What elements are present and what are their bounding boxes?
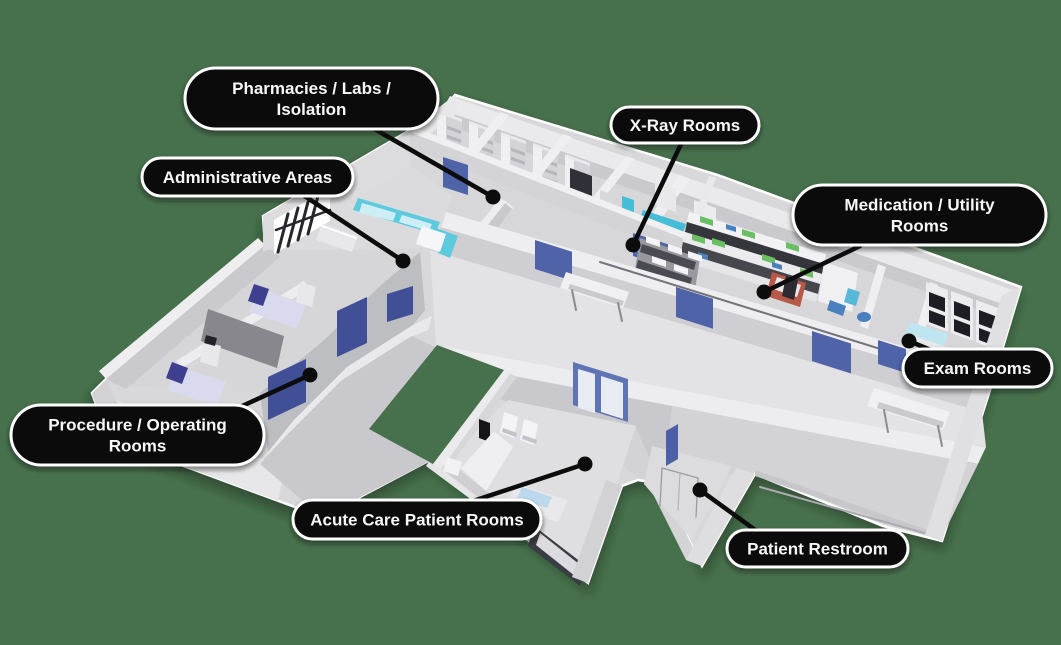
svg-text:Isolation: Isolation (277, 100, 347, 119)
svg-text:Rooms: Rooms (109, 436, 167, 455)
svg-text:Rooms: Rooms (891, 216, 949, 235)
svg-text:Administrative Areas: Administrative Areas (163, 168, 332, 187)
svg-text:Patient Restroom: Patient Restroom (747, 540, 888, 559)
svg-text:Pharmacies / Labs /: Pharmacies / Labs / (232, 79, 391, 98)
svg-text:Acute Care Patient Rooms: Acute Care Patient Rooms (310, 511, 524, 530)
svg-text:Medication / Utility: Medication / Utility (844, 195, 995, 214)
svg-text:X-Ray Rooms: X-Ray Rooms (630, 116, 741, 135)
svg-text:Exam Rooms: Exam Rooms (924, 359, 1032, 378)
svg-text:Procedure / Operating: Procedure / Operating (48, 415, 227, 434)
